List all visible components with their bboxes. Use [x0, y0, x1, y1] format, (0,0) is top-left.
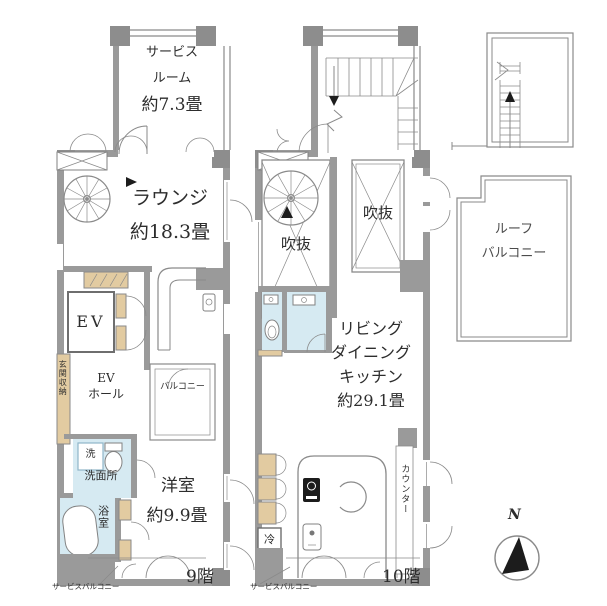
- lounge-size: 約18.3畳: [112, 222, 228, 244]
- floor10-label: 10階: [382, 568, 421, 588]
- door-arc: [70, 134, 106, 152]
- floor10-stairwell: [277, 26, 420, 153]
- spiral-staircase-icon: [264, 171, 318, 225]
- stairs-icon: [495, 62, 520, 148]
- washroom-label: 洗面所: [72, 470, 130, 483]
- door-arc: [277, 124, 328, 153]
- western-room-label: 洋室: [133, 477, 223, 497]
- ev-hall-label2: ホール: [70, 388, 142, 402]
- lounge-label: ラウンジ: [120, 188, 220, 210]
- floor10-unit: [255, 26, 452, 586]
- counter-label: カウンター: [399, 464, 409, 560]
- void-right-label: 吹抜: [356, 205, 400, 222]
- service-room-size: 約7.3畳: [117, 96, 227, 116]
- floor10-toilets: [258, 286, 332, 356]
- roof-balcony-label2: バルコニー: [462, 247, 566, 262]
- kitchen-counter: [298, 456, 397, 578]
- sink-icon: [303, 524, 321, 550]
- storage-cabinets: [258, 454, 286, 524]
- hand-basin-icon: [203, 294, 215, 311]
- bathroom-label: 浴室: [96, 505, 109, 555]
- toilet-icon: [265, 320, 279, 340]
- fridge-label: 冷: [258, 534, 281, 547]
- ldk-label-1: リビング: [326, 320, 416, 338]
- service-room-label2: ルーム: [117, 72, 227, 87]
- door-arc: [119, 126, 147, 154]
- entry-storage-label: 玄関収納: [58, 360, 67, 440]
- door-arc: [430, 462, 452, 548]
- stove-icon: [303, 478, 320, 502]
- western-room-size: 約9.9畳: [127, 507, 227, 527]
- compass-icon: [495, 536, 539, 580]
- door-arc: [430, 178, 450, 230]
- door-arc: [115, 136, 214, 152]
- service-balcony-label-10f: サービスバルコニー: [250, 583, 317, 592]
- ldk-size: 約29.1畳: [322, 392, 420, 410]
- floor9-hatched-bay: [57, 152, 107, 170]
- stairs-icon: [326, 58, 418, 150]
- ldk-label-3: キッチン: [326, 368, 416, 386]
- door-arc: [126, 296, 146, 350]
- service-balcony-label-9f: サービスバルコニー: [52, 583, 119, 592]
- void-left-label: 吹抜: [274, 236, 318, 253]
- service-room-label: サービス: [117, 46, 227, 61]
- door-arc: [230, 200, 254, 570]
- roof-balcony-label: ルーフ: [462, 223, 566, 238]
- ev-hall-label: EV: [70, 372, 142, 386]
- door-arc: [122, 556, 190, 578]
- floor9-label: 9階: [186, 568, 214, 588]
- roof-structure: [452, 33, 573, 341]
- elevator-label: EV: [68, 313, 114, 331]
- closet-icon: [84, 272, 128, 288]
- compass-north-label: N: [508, 507, 521, 523]
- balcony-label: バルコニー: [150, 382, 215, 392]
- floorplan-page: サービス ルーム 約7.3畳 ラウンジ 約18.3畳 EV EV ホール 玄関収…: [0, 0, 607, 606]
- washer-label: 洗: [78, 449, 103, 461]
- ldk-label-2: ダイニング: [326, 344, 416, 362]
- floor9-balcony: [150, 364, 215, 440]
